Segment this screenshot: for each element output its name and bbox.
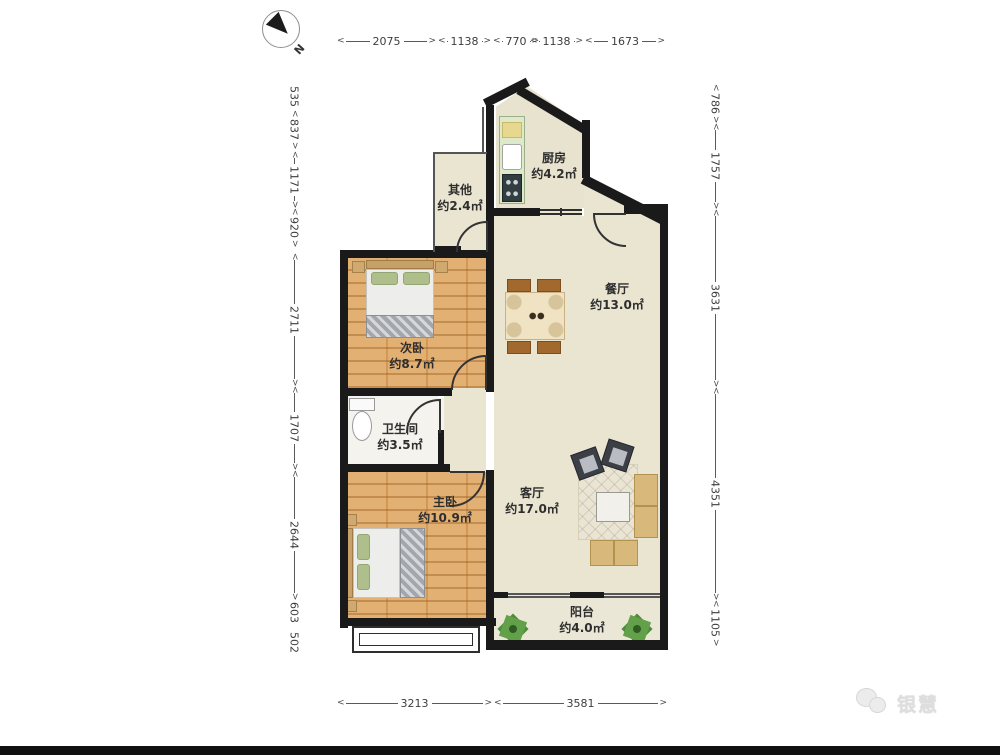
dining-label: 餐厅 约13.0㎡ [577,282,657,313]
arrow-up-icon: < [290,151,297,159]
arrow-up-icon: < [290,208,297,216]
arrow-left-icon: < [493,699,503,708]
dim-segment: <920> [283,208,305,253]
arrow-up-icon: < [290,110,297,118]
dim-segment: <837> [283,110,305,151]
bathroom-label: 卫生间 约3.5㎡ [360,422,440,453]
arrow-left-icon: < [492,37,502,46]
arrow-up-icon: < [290,386,297,394]
arrow-up-icon: < [290,253,297,261]
dimension-top: <2075> <1138> <770> <1138> <1673> [336,34,666,48]
floorplan-image: 厨房 约4.2㎡ 其他 约2.4㎡ 餐厅 约13.0㎡ 次卧 约8.7㎡ 卫生间… [0,0,1000,755]
other-room-label: 其他 约2.4㎡ [430,183,490,214]
second-bedroom-door [452,356,486,390]
entry-door [594,214,626,246]
dim-segment: <1707> [283,386,305,470]
compass: N [260,10,306,56]
arrow-right-icon: > [656,37,666,46]
master-bedroom-label: 主卧 约10.9㎡ [405,495,485,526]
dim-segment: <1171> [283,151,305,208]
arrow-right-icon: > [658,699,668,708]
chat-bubbles-icon [856,688,890,718]
arrow-up-icon: < [290,470,297,478]
arrow-up-icon: < [711,84,718,92]
dim-segment: <2075> [336,34,437,48]
arrow-right-icon: > [483,699,493,708]
arrow-right-icon: > [575,37,585,46]
dim-segment: <2711> [283,253,305,386]
dim-segment: <4351> [704,387,726,600]
balcony-label: 阳台 约4.0㎡ [542,605,622,636]
arrow-left-icon: < [336,37,346,46]
arrow-down-icon: > [290,240,297,248]
dimension-right: <786> <1757> <3631> <4351> <1105> [704,84,726,656]
watermark: 银慧 [856,688,939,718]
dim-segment: <786> [704,84,726,123]
dimension-left: 535 <837> <1171> <920> <2711> <1707> <26… [283,84,305,656]
arrow-left-icon: < [437,37,447,46]
dimension-bottom: <3213> <3581> [336,696,668,710]
kitchen-label: 厨房 约4.2㎡ [524,151,584,182]
arrow-right-icon: > [427,37,437,46]
dim-segment: <770> [492,34,529,48]
dim-segment: <1138> [529,34,584,48]
dim-segment: <3213> [336,696,493,710]
compass-north-label: N [291,42,307,58]
watermark-brand: 银慧 [897,690,939,717]
arrow-down-icon: > [290,142,297,150]
arrow-left-icon: < [336,699,346,708]
arrow-up-icon: < [711,123,718,131]
other-room-door [457,222,487,252]
bottom-bar [0,746,1000,755]
arrow-down-icon: > [290,593,297,601]
dim-segment: 535 [283,84,305,110]
arrow-left-icon: < [584,37,594,46]
dim-segment: 502 [283,630,305,656]
arrow-up-icon: < [711,209,718,217]
dim-segment: <1138> [437,34,492,48]
dim-segment: <1757> [704,123,726,209]
dim-segment: <3631> [704,209,726,387]
arrow-left-icon: < [529,37,539,46]
arrow-up-icon: < [711,600,718,608]
arrow-right-icon: > [483,37,493,46]
second-bedroom-label: 次卧 约8.7㎡ [372,341,452,372]
dim-segment: <1105> [704,600,726,654]
dim-segment: <3581> [493,696,668,710]
dim-segment: <2644> [283,470,305,600]
living-label: 客厅 约17.0㎡ [492,486,572,517]
arrow-down-icon: > [711,639,718,647]
dim-segment: 603 [283,600,305,630]
dim-segment: <1673> [584,34,666,48]
arrow-up-icon: < [711,387,718,395]
